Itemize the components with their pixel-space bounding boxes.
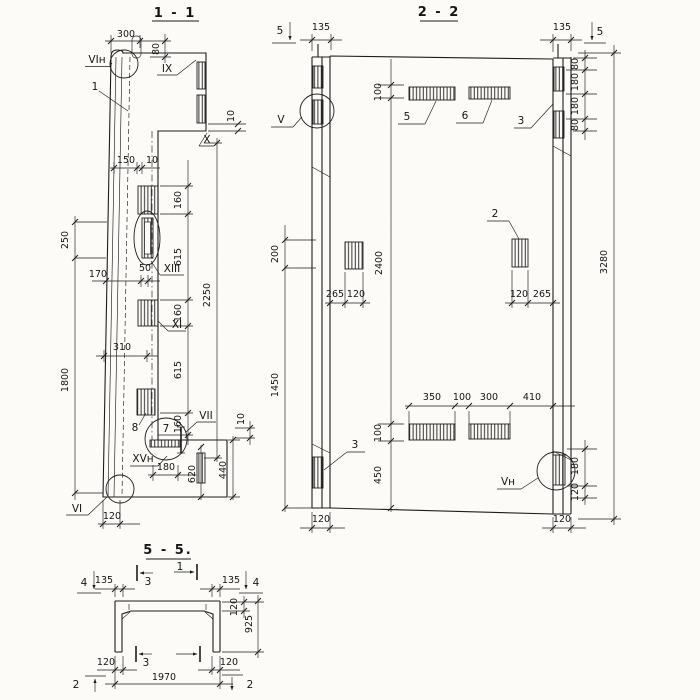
dim-250: 250 xyxy=(60,231,71,249)
dim-410: 410 xyxy=(523,392,541,403)
dim-120-bottom-left: 120 xyxy=(312,514,330,525)
cut-label-2-left: 2 xyxy=(73,679,80,691)
dim-300: 300 xyxy=(117,29,135,40)
embedded-plate xyxy=(313,66,323,88)
dim-135-left: 135 xyxy=(95,575,113,586)
dim-925: 925 xyxy=(244,615,255,633)
dim-440: 440 xyxy=(218,461,229,479)
part-label-8: 8 xyxy=(132,422,139,434)
cut-label-2-right: 2 xyxy=(247,679,254,691)
embedded-plate xyxy=(138,186,158,214)
dim-120-c: 120 xyxy=(570,483,581,501)
dim-80-a: 80 xyxy=(570,58,581,70)
embedded-plate-2 xyxy=(512,239,528,267)
dim-50: 50 xyxy=(139,263,151,274)
embedded-strip-6 xyxy=(469,87,510,99)
dim-120-right: 120 xyxy=(510,289,528,300)
dim-120-bottom-right: 120 xyxy=(553,514,571,525)
dim-100-top: 100 xyxy=(373,83,384,101)
dim-135-right: 135 xyxy=(553,22,571,33)
detail-label-vii: VII xyxy=(199,410,212,422)
corner-bracket xyxy=(150,440,180,447)
cut-label-5-left: 5 xyxy=(277,25,284,37)
dim-1800: 1800 xyxy=(60,368,71,392)
section-1-1-title: 1 - 1 xyxy=(154,6,197,21)
part-label-7: 7 xyxy=(163,423,170,435)
detail-label-v-n: Vн xyxy=(501,476,515,488)
dimension-lines xyxy=(271,34,621,533)
embedded-plate xyxy=(313,457,323,488)
section-2-2: 2 - 2 135 135 5 5 80 180 180 80 3280 100… xyxy=(270,5,621,533)
dim-150: 150 xyxy=(117,155,135,166)
embedded-plate xyxy=(197,95,205,123)
embedded-plate xyxy=(138,300,158,326)
dim-120-slab: 120 xyxy=(229,598,240,616)
detail-label-vi-n: VIн xyxy=(88,54,105,66)
dim-615-b: 615 xyxy=(173,361,184,379)
dim-180: 180 xyxy=(157,462,175,473)
dim-100-row: 100 xyxy=(453,392,471,403)
dim-180-b: 180 xyxy=(570,97,581,115)
detail-label-xi: XI xyxy=(172,319,182,331)
section-2-2-title: 2 - 2 xyxy=(418,5,461,20)
cut-label-4-left: 4 xyxy=(81,577,88,589)
embedded-plate xyxy=(313,100,323,124)
dim-180-a: 180 xyxy=(570,73,581,91)
dim-1450: 1450 xyxy=(270,373,281,397)
cut-label-5-right: 5 xyxy=(597,26,604,38)
hidden-web-line xyxy=(122,57,130,497)
dim-10-bottom: 10 xyxy=(236,413,247,425)
dim-160-a: 160 xyxy=(173,191,184,209)
cut-label-3-top: 3 xyxy=(145,576,152,588)
dim-135-right: 135 xyxy=(222,575,240,586)
dim-180-c: 180 xyxy=(570,457,581,475)
detail-label-xiii: XIII xyxy=(164,263,180,275)
embedded-plate xyxy=(553,455,565,485)
cut-label-4-right: 4 xyxy=(253,577,260,589)
dim-300: 300 xyxy=(480,392,498,403)
embedded-strip xyxy=(469,424,510,439)
part-label-2: 2 xyxy=(492,208,499,220)
embedded-plate xyxy=(197,62,205,89)
detail-label-x: X xyxy=(203,134,210,146)
detail-circle-vi-bottom xyxy=(106,475,134,503)
detail-label-xv-n: XVн xyxy=(132,453,153,465)
part-label-3-bottom: 3 xyxy=(352,439,359,451)
dim-120: 120 xyxy=(103,511,121,522)
structural-panel-drawing: 1 - 1 300 80 10 150 10 250 170 50 1800 xyxy=(0,0,700,700)
dim-450: 450 xyxy=(373,466,384,484)
embedded-plate-left xyxy=(345,242,363,269)
dim-10-top: 10 xyxy=(226,110,237,122)
cut-label-3-bottom: 3 xyxy=(143,657,150,669)
dim-2250: 2250 xyxy=(202,283,213,307)
embedded-plate xyxy=(554,111,564,138)
embedded-plate xyxy=(137,389,155,415)
detail-circle-vi-top xyxy=(110,50,138,78)
dim-80-b: 80 xyxy=(570,119,581,131)
part-label-1: 1 xyxy=(92,81,99,93)
dim-200: 200 xyxy=(270,245,281,263)
part-label-5: 5 xyxy=(404,111,411,123)
cut-label-1-top: 1 xyxy=(177,561,184,573)
dim-10-mid: 10 xyxy=(146,155,158,166)
embedded-strip-5 xyxy=(409,87,455,100)
part-label-3-top: 3 xyxy=(518,115,525,127)
dim-160-c: 160 xyxy=(173,415,184,433)
embedded-plate xyxy=(554,67,564,91)
dim-265-left: 265 xyxy=(326,289,344,300)
dim-170: 170 xyxy=(89,269,107,280)
detail-label-v: V xyxy=(277,114,285,126)
dim-120-left: 120 xyxy=(347,289,365,300)
dim-3280: 3280 xyxy=(599,250,610,274)
dim-120-bottom-right: 120 xyxy=(220,657,238,668)
dim-310: 310 xyxy=(113,342,131,353)
embedded-strip xyxy=(409,424,455,440)
dim-350: 350 xyxy=(423,392,441,403)
dim-100-bottom: 100 xyxy=(373,424,384,442)
dim-2400: 2400 xyxy=(374,251,385,275)
section-5-5: 5 - 5. 135 135 4 4 3 1 3 2 2 120 120 197… xyxy=(73,543,264,692)
detail-label-vi: VI xyxy=(72,503,82,515)
anchor-bar-core xyxy=(145,222,151,254)
dim-620: 620 xyxy=(187,465,198,483)
dim-265-right: 265 xyxy=(533,289,551,300)
channel-outline xyxy=(115,601,220,652)
section-1-1: 1 - 1 300 80 10 150 10 250 170 50 1800 xyxy=(60,6,255,529)
dim-1970: 1970 xyxy=(152,672,176,683)
dim-135-left: 135 xyxy=(312,22,330,33)
part-label-6: 6 xyxy=(462,110,469,122)
section-5-5-title: 5 - 5. xyxy=(143,543,192,558)
dimension-ticks xyxy=(282,37,617,531)
detail-label-ix: IX xyxy=(162,63,172,75)
dim-120-bottom-left: 120 xyxy=(97,657,115,668)
dim-80: 80 xyxy=(151,43,162,55)
